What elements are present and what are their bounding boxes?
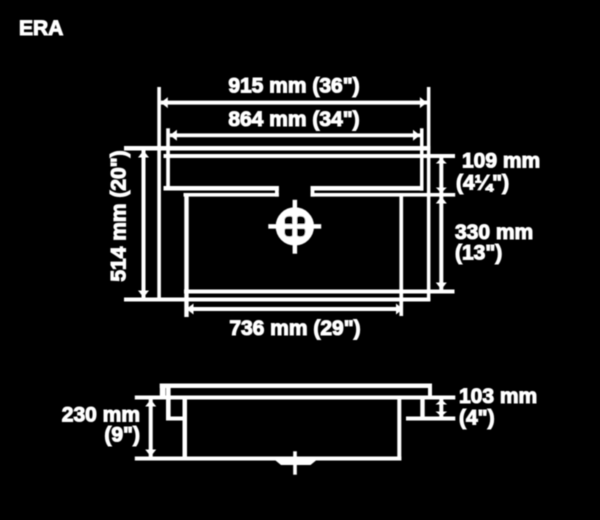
svg-text:(4¼"): (4¼") (456, 172, 509, 195)
svg-text:(4"): (4") (459, 407, 495, 430)
svg-text:514 mm (20"): 514 mm (20") (108, 150, 131, 281)
svg-text:ERA: ERA (19, 17, 63, 40)
svg-text:(9"): (9") (104, 424, 140, 447)
svg-text:(13"): (13") (455, 242, 502, 265)
svg-text:109 mm: 109 mm (462, 150, 540, 173)
svg-text:736 mm (29"): 736 mm (29") (229, 317, 360, 340)
svg-text:103 mm: 103 mm (459, 385, 537, 408)
svg-text:915 mm (36"): 915 mm (36") (228, 75, 359, 98)
svg-text:864 mm (34"): 864 mm (34") (228, 108, 359, 131)
